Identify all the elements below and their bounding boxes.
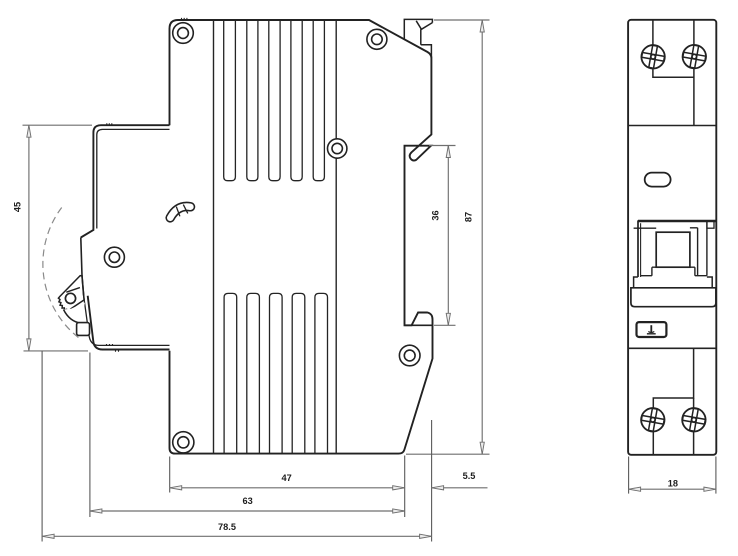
svg-text:18: 18 bbox=[668, 479, 678, 489]
svg-text:87: 87 bbox=[464, 212, 474, 222]
svg-text:63: 63 bbox=[242, 496, 252, 506]
svg-text:36: 36 bbox=[431, 210, 441, 220]
svg-text:47: 47 bbox=[281, 473, 291, 483]
svg-text:45: 45 bbox=[13, 202, 23, 212]
svg-text:78.5: 78.5 bbox=[218, 522, 236, 532]
svg-text:5.5: 5.5 bbox=[463, 471, 476, 481]
